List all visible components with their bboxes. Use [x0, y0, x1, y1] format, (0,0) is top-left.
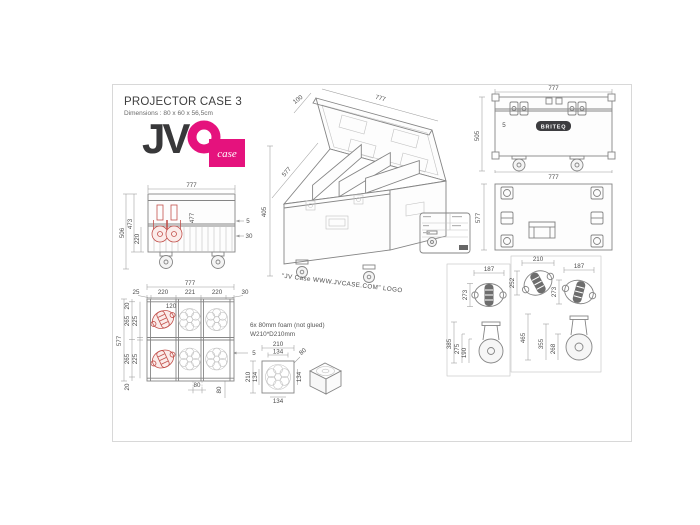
dim-offset-a: 80: [194, 382, 201, 389]
dim-foamblock-width-inner: 134: [273, 349, 284, 356]
foam-layout-drawing: 777 25 220 221 220 30 577 20 265 225 265…: [114, 277, 264, 411]
header: PROJECTOR CASE 3 Dimensions : 80 x 60 x …: [124, 96, 242, 117]
dim-foamblock-depth-inner: 134: [252, 371, 259, 382]
dim-col-3: 220: [212, 289, 223, 296]
dim-foamblock-side: 134: [296, 371, 303, 382]
caster-detail-small: 187 273 385 275 190: [446, 260, 514, 378]
dim-foamblock-depth: 210: [245, 371, 252, 382]
back-view-drawing: BRITEQ 777 505 5 777: [472, 84, 632, 180]
logo-jv-text: JV: [142, 120, 187, 158]
dim-caster-l-wheel: 268: [550, 343, 557, 354]
dim-row-0: 20: [124, 302, 131, 309]
dim-front-width: 777: [186, 182, 197, 189]
dim-foamblock-width: 210: [273, 341, 284, 348]
dim-row-5: 20: [124, 383, 131, 390]
dim-caster-l-depth-a: 252: [509, 277, 516, 288]
front-view-drawing: 777 506 473 220 477 5 30: [118, 180, 268, 280]
dim-row-1: 265: [124, 315, 131, 326]
foam-block-detail: 210 134 210 134 134 134 80: [244, 338, 350, 406]
foam-block-iso: [310, 363, 341, 394]
dim-row-2: 225: [132, 315, 139, 326]
brand-badge: BRITEQ: [536, 121, 571, 131]
logo-print-caption: "JV Case WWW.JVCASE.COM" LOGO: [281, 273, 403, 295]
caster-top-view: [472, 284, 506, 307]
dim-foam-width: 777: [185, 280, 196, 287]
dim-top-depth: 577: [475, 212, 482, 223]
dim-front-rail: 30: [246, 233, 253, 240]
dim-caster-s-depth: 273: [462, 289, 469, 300]
dim-front-lip: 5: [246, 218, 250, 225]
dim-caster-l-width-b: 187: [574, 263, 585, 270]
dim-col-4: 30: [242, 289, 249, 296]
dim-front-height-lower: 220: [134, 233, 141, 244]
front-wheels: [160, 252, 225, 269]
dim-persp-depth: 577: [281, 165, 293, 178]
dim-row-3: 265: [124, 353, 131, 364]
logo-case-text: case: [218, 148, 238, 160]
dim-caster-s-wheel: 190: [461, 347, 468, 358]
dim-caster-l-depth-b: 273: [551, 286, 558, 297]
logo-case-icon: case: [185, 120, 249, 172]
foam-cutout-detail: [266, 365, 291, 390]
caster-side-view-large: [566, 316, 592, 360]
dim-foamblock-thickness: 80: [298, 347, 308, 357]
dim-front-height-mid: 477: [189, 212, 196, 223]
caster-top-view-b: [559, 276, 598, 307]
dim-caster-s-mid: 275: [454, 343, 461, 354]
dim-front-height-outer: 506: [119, 227, 126, 238]
page-title: PROJECTOR CASE 3: [124, 96, 242, 108]
perspective-view-drawing: 100 777 577 405 "JV Case WWW.JVCASE.COM"…: [256, 84, 468, 296]
dim-caster-width: 120: [166, 303, 177, 310]
dim-persp-height: 405: [261, 206, 268, 217]
foam-note-line1: 6x 80mm foam (not glued): [250, 321, 325, 330]
dim-caster-s-width: 187: [484, 266, 495, 273]
caster-side-view: [479, 322, 503, 363]
dim-offset-b: 80: [216, 386, 223, 393]
dim-lid-depth: 100: [292, 94, 305, 106]
label-plate-logo: [459, 245, 468, 250]
brand-logo-text: BRITEQ: [541, 125, 567, 131]
spec-sheet: PROJECTOR CASE 3 Dimensions : 80 x 60 x …: [0, 0, 700, 525]
back-wheels: [512, 156, 584, 171]
foam-note: 6x 80mm foam (not glued) W210*D210mm: [250, 321, 325, 340]
dim-col-1: 220: [158, 289, 169, 296]
dim-caster-s-total: 385: [446, 338, 453, 349]
dim-back-lip: 5: [502, 122, 506, 129]
dim-foamblock-bottom: 134: [273, 398, 284, 405]
dim-back-height: 505: [474, 130, 481, 141]
dim-caster-l-width-a: 210: [533, 256, 544, 263]
dim-back-width: 777: [548, 85, 559, 92]
dim-col-0: 25: [133, 289, 140, 296]
label-plate: [417, 209, 475, 257]
dim-row-4: 225: [132, 353, 139, 364]
dim-col-2: 221: [185, 289, 196, 296]
caster-detail-large: 210 252 187 273 465 355 268: [510, 250, 604, 378]
dim-caster-l-mid: 355: [538, 338, 545, 349]
dim-front-height-inner: 473: [127, 218, 134, 229]
dim-foam-depth: 577: [116, 335, 123, 346]
jv-case-logo: JV case: [142, 120, 249, 172]
dim-persp-width: 777: [374, 94, 386, 104]
dim-caster-l-total: 465: [520, 332, 527, 343]
